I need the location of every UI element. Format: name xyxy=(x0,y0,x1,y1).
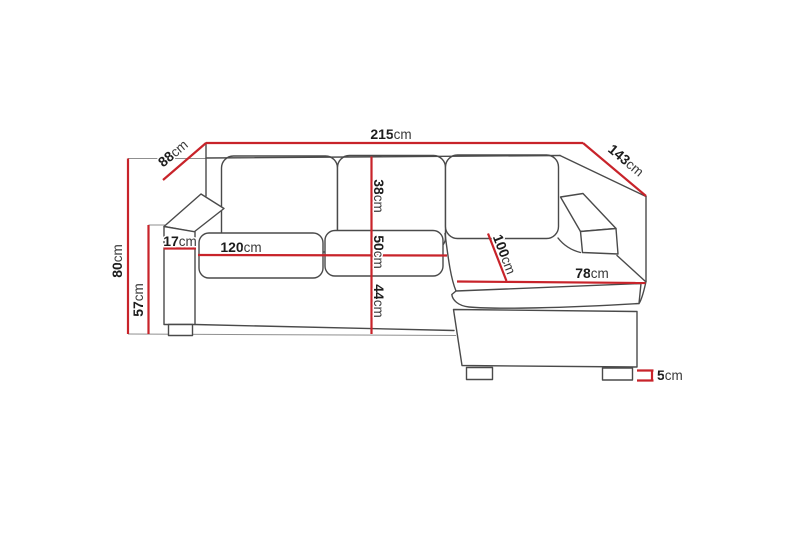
dim-label-seat-width: 120cm xyxy=(220,239,261,255)
chaise-right-back-edge xyxy=(617,256,646,282)
dim-line-chaise-width xyxy=(457,282,646,284)
right-armrest-front xyxy=(581,229,619,255)
dim-line-leg-height xyxy=(637,371,654,381)
chaise-base xyxy=(454,310,638,368)
dim-label-armrest-width: 17cm xyxy=(163,233,197,249)
sofa-dimension-diagram: 215cm 88cm 143cm 80cm 57cm 17cm 120cm 38… xyxy=(0,0,800,533)
diagram-svg: 215cm 88cm 143cm 80cm 57cm 17cm 120cm 38… xyxy=(0,0,800,533)
chaise-back-seam xyxy=(558,238,581,253)
left-armrest-top xyxy=(164,194,224,232)
dim-label-total-width: 215cm xyxy=(370,126,411,142)
chaise-left-edge xyxy=(445,234,456,292)
dim-label-right-depth: 143cm xyxy=(605,141,647,180)
dim-line-seat-width xyxy=(198,255,447,256)
dim-label-leg-height: 5cm xyxy=(657,367,683,383)
left-front-leg xyxy=(169,325,193,336)
dim-label-left-depth: 88cm xyxy=(155,136,191,170)
chaise-right-leg xyxy=(603,368,633,380)
sofa-outline xyxy=(164,143,646,380)
right-armrest-top xyxy=(561,194,617,232)
sofa-bottom-edge xyxy=(195,325,454,331)
back-cushion-right xyxy=(446,155,559,239)
chaise-left-leg xyxy=(467,368,493,380)
dim-label-armrest-height: 57cm xyxy=(130,283,146,317)
dim-label-chaise-width: 78cm xyxy=(575,265,609,281)
dim-label-seat-height: 44cm xyxy=(371,284,387,318)
chaise-seat-front xyxy=(452,284,641,309)
dim-label-seat-depth: 50cm xyxy=(371,235,387,269)
dim-label-total-height: 80cm xyxy=(109,244,125,278)
dim-label-backrest-height: 38cm xyxy=(371,179,387,213)
